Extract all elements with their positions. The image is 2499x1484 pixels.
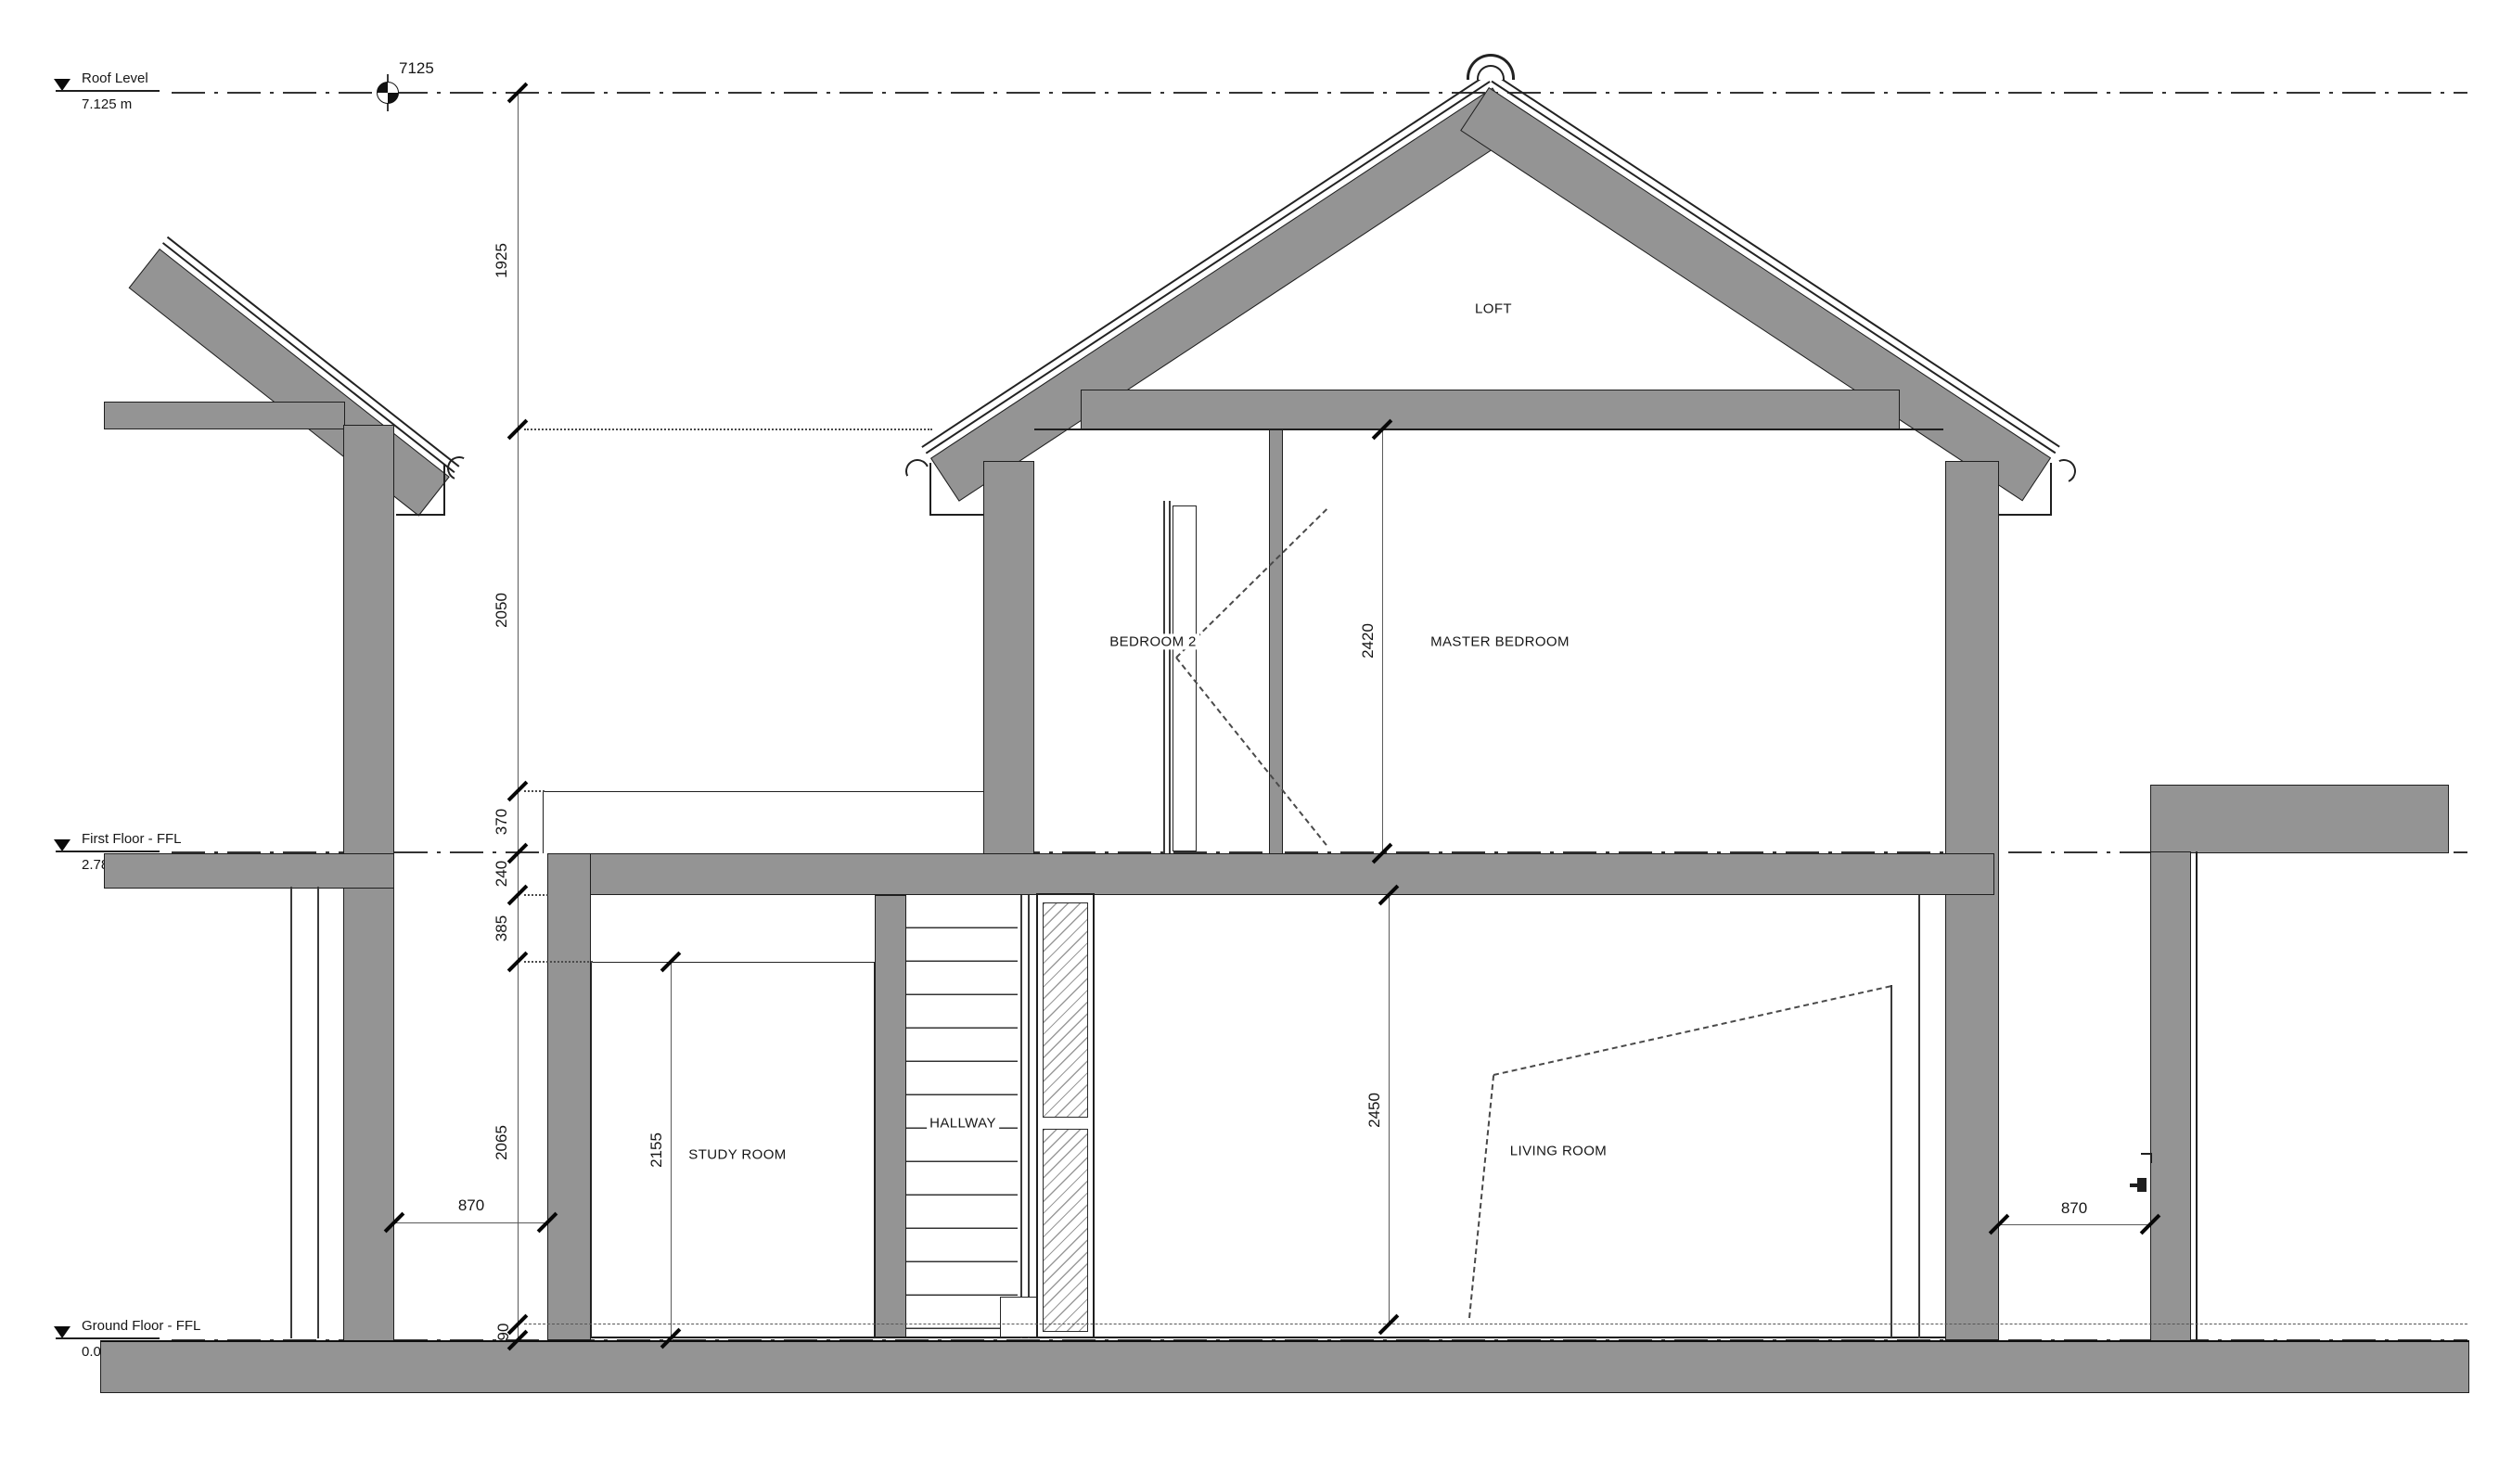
spot-elevation-value: 7125 bbox=[399, 59, 434, 78]
parapet-ref-line bbox=[524, 790, 545, 792]
room-label-loft: LOFT bbox=[1472, 301, 1515, 316]
living-room-break-line bbox=[1493, 985, 1891, 1076]
dim-roof-to-eaves: 1925 bbox=[493, 243, 511, 278]
main-right-soffit bbox=[1996, 514, 2050, 516]
loft-floor-slab bbox=[1081, 390, 1900, 429]
living-height-dim: 2450 bbox=[1365, 1093, 1384, 1128]
left-gap-dim-line bbox=[394, 1222, 547, 1223]
upper-left-wall bbox=[983, 461, 1034, 854]
main-left-soffit bbox=[929, 514, 983, 516]
dim-eaves-to-parapet: 2050 bbox=[493, 593, 511, 628]
ground-floor-line bbox=[591, 1337, 1946, 1338]
slab-soffit-ref-line bbox=[524, 894, 548, 896]
left-house-roof-tile-line bbox=[162, 242, 455, 473]
main-left-gutter-icon bbox=[902, 455, 932, 486]
ground-floor-label: Ground Floor - FFL bbox=[82, 1318, 200, 1334]
bedroom2-door-swing-line bbox=[1175, 657, 1326, 845]
left-house-roof-tile-line bbox=[167, 237, 459, 467]
tap-icon bbox=[2130, 1183, 2137, 1187]
left-house-window-frame bbox=[290, 887, 292, 1338]
section-drawing-canvas: Roof Level 7.125 m First Floor - FFL 2.7… bbox=[0, 0, 2499, 1484]
ground-slab bbox=[100, 1340, 2469, 1393]
spot-elevation-icon bbox=[377, 82, 399, 104]
main-roof-left-slope bbox=[930, 87, 1521, 501]
room-label-hallway: HALLWAY bbox=[927, 1115, 999, 1131]
right-structure-wall bbox=[2150, 851, 2191, 1345]
bedroom2-door-frame bbox=[1169, 501, 1171, 853]
right-gap-dim: 870 bbox=[2061, 1199, 2087, 1218]
roof-level-label: Roof Level bbox=[82, 70, 148, 86]
study-height-dim: 2155 bbox=[647, 1132, 666, 1168]
tap-icon bbox=[2137, 1178, 2147, 1192]
room-label-master-bedroom: MASTER BEDROOM bbox=[1428, 633, 1572, 649]
study-height-dim-line bbox=[671, 962, 672, 1338]
ffl-ref-line bbox=[524, 1324, 2467, 1324]
bedroom-ceiling-line bbox=[1034, 429, 1943, 430]
living-room-break-line bbox=[1468, 1075, 1494, 1318]
left-house-fascia bbox=[443, 464, 445, 516]
right-wall bbox=[1945, 461, 1999, 1340]
dim-parapet-to-ffl: 370 bbox=[493, 809, 511, 835]
right-structure-face-line bbox=[2196, 851, 2198, 1340]
right-structure-parapet bbox=[2150, 785, 2449, 853]
first-floor-label: First Floor - FFL bbox=[82, 831, 182, 847]
ground-left-wall bbox=[547, 853, 591, 1340]
left-house-soffit bbox=[396, 514, 445, 516]
left-house-floor-slab bbox=[104, 853, 394, 889]
ridge-tile-icon bbox=[1467, 54, 1515, 80]
roof-level-elevation: 7.125 m bbox=[82, 96, 132, 112]
left-house-ceiling-slab bbox=[104, 402, 345, 429]
dimension-chain-line bbox=[518, 93, 519, 1340]
ridge-tile-inner bbox=[1477, 65, 1505, 80]
roof-level-underline bbox=[56, 90, 160, 92]
glazed-door-lower-panel bbox=[1043, 1129, 1088, 1332]
loft-floor-ref-line bbox=[524, 429, 932, 430]
tap-hook-icon bbox=[2150, 1153, 2152, 1163]
stair-trim-line bbox=[1028, 895, 1030, 1338]
first-floor-underline bbox=[56, 851, 160, 852]
dim-slab-depth: 240 bbox=[493, 861, 511, 887]
living-height-dim-line bbox=[1389, 895, 1390, 1324]
dim-floor-buildup: 90 bbox=[494, 1324, 513, 1341]
left-gap-dim: 870 bbox=[458, 1196, 484, 1215]
bedroom2-door-frame bbox=[1163, 501, 1165, 853]
main-roof-right-slope bbox=[1460, 87, 2051, 501]
room-label-study-room: STUDY ROOM bbox=[686, 1146, 788, 1162]
living-room-window-frame bbox=[1890, 985, 1892, 1337]
stair-trim-line bbox=[1020, 895, 1022, 1338]
master-height-dim: 2420 bbox=[1359, 623, 1378, 659]
dim-bulkhead: 385 bbox=[493, 915, 511, 941]
glazed-door-upper-panel bbox=[1043, 902, 1088, 1118]
flat-roof-parapet bbox=[543, 791, 983, 853]
living-room-window-frame bbox=[1918, 895, 1920, 1338]
main-right-gutter-icon bbox=[2048, 455, 2079, 486]
master-height-dim-line bbox=[1382, 429, 1383, 853]
left-house-window-frame bbox=[317, 887, 319, 1338]
room-label-living-room: LIVING ROOM bbox=[1507, 1143, 1609, 1158]
study-ceiling-ref-line bbox=[524, 961, 593, 963]
ground-interior-wall bbox=[875, 895, 906, 1338]
dim-ceiling-to-ffl: 2065 bbox=[493, 1125, 511, 1160]
room-label-bedroom2: BEDROOM 2 bbox=[1107, 633, 1199, 649]
left-house-roof bbox=[129, 249, 450, 517]
right-gap-dim-line bbox=[1999, 1224, 2150, 1225]
first-floor-slab bbox=[547, 853, 1994, 895]
ground-floor-underline bbox=[56, 1337, 160, 1339]
